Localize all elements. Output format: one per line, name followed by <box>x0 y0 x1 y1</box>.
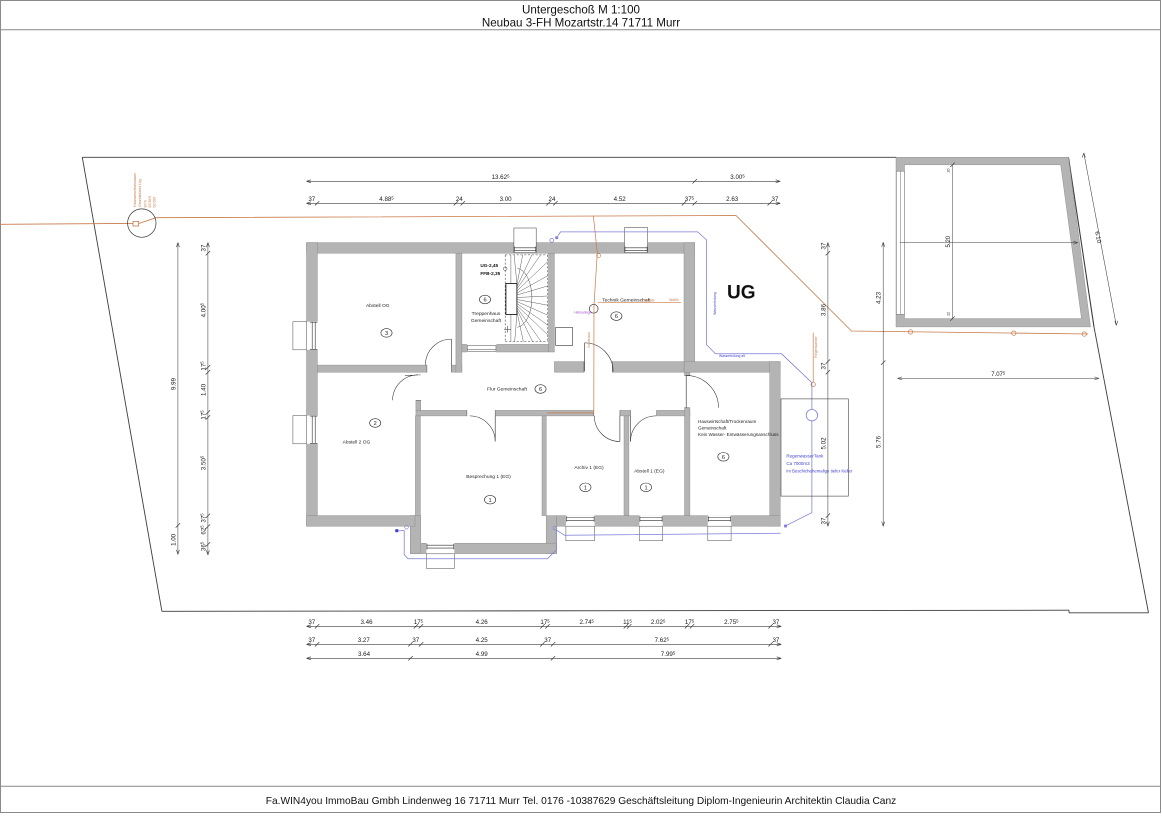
svg-text:3: 3 <box>385 331 388 337</box>
svg-text:3.27: 3.27 <box>358 637 371 644</box>
svg-text:Wasserleitung alt: Wasserleitung alt <box>719 354 745 358</box>
svg-text:Besprechung 1 (EG): Besprechung 1 (EG) <box>466 474 511 480</box>
svg-text:Neubau 3-FH Mozartstr.14 71711: Neubau 3-FH Mozartstr.14 71711 Murr <box>482 17 680 30</box>
svg-text:W70: W70 <box>143 200 147 207</box>
svg-text:37: 37 <box>820 362 827 369</box>
svg-text:37: 37 <box>308 196 315 203</box>
svg-text:6: 6 <box>722 455 725 461</box>
svg-text:RegenwasserTank: RegenwasserTank <box>786 454 824 459</box>
svg-text:12: 12 <box>947 312 951 316</box>
svg-text:WaWü: WaWü <box>669 298 679 302</box>
svg-text:Kein Wasser- Entwässerungsansc: Kein Wasser- Entwässerungsanschluss <box>698 432 779 437</box>
svg-text:4.23: 4.23 <box>876 291 883 304</box>
svg-text:Treppenhaus: Treppenhaus <box>472 311 501 317</box>
svg-text:UG: UG <box>727 282 756 303</box>
svg-text:37: 37 <box>772 196 779 203</box>
svg-text:Archiv 1 (EG): Archiv 1 (EG) <box>574 465 604 471</box>
svg-text:2: 2 <box>374 421 377 427</box>
svg-text:9.99: 9.99 <box>170 377 177 390</box>
svg-text:2.63: 2.63 <box>726 196 739 203</box>
svg-text:4.99: 4.99 <box>476 651 489 658</box>
svg-text:37: 37 <box>308 619 315 626</box>
svg-text:3.86: 3.86 <box>820 303 827 316</box>
svg-text:37: 37 <box>820 242 827 249</box>
svg-text:Flur Gemeinschaft: Flur Gemeinschaft <box>487 387 528 393</box>
svg-text:24: 24 <box>549 196 556 203</box>
svg-text:5.76: 5.76 <box>876 435 883 448</box>
svg-text:37: 37 <box>308 637 315 644</box>
svg-text:4.25: 4.25 <box>476 637 489 644</box>
svg-text:3.64: 3.64 <box>358 651 371 658</box>
svg-text:Fa.WIN4you ImmoBau Gmbh Linden: Fa.WIN4you ImmoBau Gmbh Lindenweg 16 717… <box>266 796 896 807</box>
svg-text:37: 37 <box>200 244 207 251</box>
svg-text:Hausanschlussraum: Hausanschlussraum <box>133 173 137 207</box>
svg-text:Kond.abl: Kond.abl <box>642 299 655 303</box>
svg-text:6: 6 <box>483 298 486 304</box>
svg-text:Kondensat: Kondensat <box>587 332 591 347</box>
svg-text:1.40: 1.40 <box>200 383 207 396</box>
svg-text:3.46: 3.46 <box>360 619 373 626</box>
svg-text:63.56/5: 63.56/5 <box>148 196 152 208</box>
svg-text:62.006: 62.006 <box>153 197 157 208</box>
svg-text:Wasserleitung: Wasserleitung <box>713 292 717 315</box>
svg-text:Gemeinschaft: Gemeinschaft <box>698 425 727 430</box>
svg-text:37: 37 <box>772 637 779 644</box>
svg-text:24: 24 <box>456 196 463 203</box>
svg-text:1: 1 <box>489 498 492 504</box>
svg-text:6: 6 <box>539 387 542 393</box>
svg-text:4.52: 4.52 <box>614 196 627 203</box>
svg-text:Gemeinschaft: Gemeinschaft <box>471 318 502 324</box>
svg-text:37: 37 <box>544 637 551 644</box>
svg-text:Abstell 1 (EG): Abstell 1 (EG) <box>634 469 665 475</box>
svg-text:1: 1 <box>584 485 587 491</box>
svg-text:Hauswirtschaft/Trockenraum: Hauswirtschaft/Trockenraum <box>698 419 756 424</box>
svg-text:5.02: 5.02 <box>820 437 827 450</box>
svg-text:5.20: 5.20 <box>946 235 952 247</box>
svg-text:1.00: 1.00 <box>170 533 177 546</box>
svg-text:3.00: 3.00 <box>500 196 513 203</box>
svg-text:Abstell 2 OG: Abstell 2 OG <box>343 440 371 446</box>
svg-text:FFB-2,35: FFB-2,35 <box>480 271 500 276</box>
svg-text:Hebeanlage: Hebeanlage <box>574 310 591 314</box>
svg-text:Regenwasser: Regenwasser <box>814 335 818 357</box>
svg-text:1: 1 <box>644 485 647 491</box>
svg-text:20: 20 <box>947 169 951 173</box>
svg-text:37: 37 <box>820 517 827 524</box>
svg-text:im Beschichehemalige tiefer Ke: im Beschichehemalige tiefer Keller <box>786 469 852 474</box>
svg-text:Ca 7000m3: Ca 7000m3 <box>786 461 810 466</box>
svg-text:37: 37 <box>772 619 779 626</box>
svg-text:Grundstücks Ltg.: Grundstücks Ltg. <box>138 178 142 207</box>
svg-text:37: 37 <box>412 637 419 644</box>
svg-text:UG-2,45: UG-2,45 <box>480 263 498 268</box>
svg-text:6: 6 <box>615 314 618 320</box>
svg-text:Abstell OG: Abstell OG <box>366 303 390 309</box>
svg-text:Untergeschoß M 1:100: Untergeschoß M 1:100 <box>522 4 640 17</box>
svg-text:4.26: 4.26 <box>476 619 489 626</box>
